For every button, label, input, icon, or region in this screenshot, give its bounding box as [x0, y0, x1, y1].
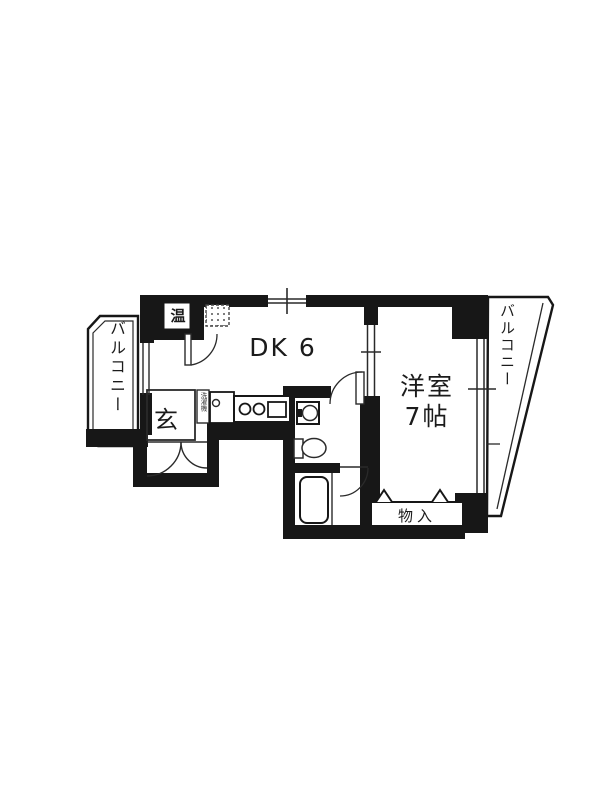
kitchen-sink-icon: [268, 402, 286, 417]
wall-bath-north: [295, 463, 340, 473]
room-label-dk: DK 6: [233, 333, 333, 362]
entry-door-arc-left: [147, 442, 181, 476]
wash-basin-faucet-icon: [297, 409, 302, 417]
wall-east-corner-top: [452, 295, 488, 339]
wall-entrance-bottom: [133, 473, 219, 487]
wall-top-right: [306, 295, 470, 307]
bathtub-icon: [300, 477, 328, 523]
washing-machine: [210, 392, 234, 423]
wall-kitchen-south: [207, 422, 290, 440]
toilet-bowl-icon: [302, 439, 326, 458]
entry-door-arc-right: [181, 442, 207, 468]
entry-door: [147, 442, 207, 476]
washing-machine-pan: [210, 392, 234, 423]
room-label-storage: 物入: [373, 505, 461, 526]
wash-basin: [297, 402, 319, 424]
window-top: [268, 288, 306, 314]
kitchen-counter: [234, 396, 290, 422]
toilet-room-door: [330, 372, 364, 404]
room-label-balcony-left: バルコニー: [104, 320, 128, 435]
refrigerator-space: [206, 305, 229, 326]
room-label-western-room: 洋室 7帖: [377, 372, 477, 432]
floorplan-canvas: DK 6 洋室 7帖 玄 物入 温 バルコニー バルコニー 洗濯機: [0, 0, 600, 800]
room-label-entrance: 玄: [144, 400, 188, 435]
wall-entrance-right: [207, 440, 219, 486]
window-balcony-left: [143, 343, 149, 395]
wall-partition-top: [364, 295, 378, 325]
western-room-size: 7帖: [377, 402, 477, 432]
niche-door-leaf: [185, 334, 191, 365]
room-label-balcony-right: バルコニー: [497, 303, 518, 433]
closet-door-mark-right: [432, 490, 448, 502]
western-room-name: 洋室: [377, 372, 477, 402]
label-water-heater: 温: [164, 305, 192, 326]
label-washing-machine: 洗濯機: [198, 392, 208, 422]
toilet: [294, 439, 326, 459]
toilet-door-leaf: [356, 372, 364, 404]
wall-west-upper: [140, 295, 154, 343]
